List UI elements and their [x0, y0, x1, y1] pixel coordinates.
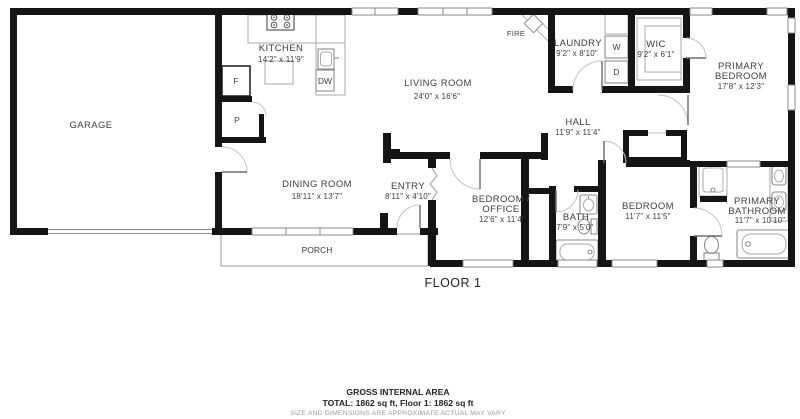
pantry-label: P [234, 115, 240, 125]
primary-bathroom-door [694, 208, 722, 236]
bath-label: BATH [563, 212, 589, 223]
fireplace-label: FIRE [507, 29, 525, 38]
garage-label: GARAGE [69, 120, 112, 131]
washer-label: W [612, 42, 620, 52]
primary-bedroom-door [658, 95, 688, 125]
entry-closet-bifold [430, 168, 437, 200]
plan-captions: FLOOR 1 GROSS INTERNAL AREA TOTAL: 1862 … [290, 276, 506, 417]
bedroom-label: BEDROOM [622, 201, 674, 212]
bedroom-dims: 11'7" x 11'5" [625, 212, 670, 221]
primary-bedroom-label-2: BEDROOM [715, 71, 767, 82]
garage-entry-door [222, 147, 247, 172]
porch-label: PORCH [302, 245, 333, 255]
primary-tub-icon [737, 230, 791, 258]
pantry-door [252, 102, 266, 116]
wic-door [686, 38, 706, 58]
wic-dims: 9'2" x 6'1" [637, 50, 674, 59]
room-labels: GARAGE KITCHEN 14'2" x 11'9" LIVING ROOM… [69, 38, 785, 255]
kitchen-dims: 14'2" x 11'9" [258, 55, 304, 64]
bath-dims: 7'9" x 5'0" [556, 223, 593, 232]
bedroom-door [604, 141, 626, 163]
laundry-dims: 9'2" x 8'10" [556, 49, 598, 58]
gross-area-total: TOTAL: 1862 sq ft, Floor 1: 1862 sq ft [322, 398, 473, 408]
dining-room-label: DINING ROOM [282, 179, 352, 190]
bedroom-office-label-2: OFFICE [482, 204, 519, 215]
exterior-walls [10, 8, 795, 267]
living-room-label: LIVING ROOM [404, 78, 472, 89]
front-door [397, 205, 420, 228]
hall-dims: 11'9" x 11'4" [555, 128, 600, 137]
bath-door [556, 190, 578, 212]
hall-label: HALL [565, 117, 590, 128]
primary-bathroom-dims: 11'7" x 10'10" [735, 216, 786, 225]
kitchen-label: KITCHEN [259, 43, 304, 54]
shower-icon [699, 164, 727, 196]
size-disclaimer: SIZE AND DIMENSIONS ARE APPROXIMATE ACTU… [290, 410, 506, 417]
kitchen-island [265, 61, 293, 84]
bedroom-office-door [450, 159, 480, 189]
laundry-label: LAUNDRY [554, 38, 602, 49]
entry-label: ENTRY [391, 181, 425, 192]
primary-bedroom-dims: 17'8" x 12'3" [718, 82, 764, 91]
gross-area-title: GROSS INTERNAL AREA [346, 387, 449, 397]
floorplan-canvas: GARAGE KITCHEN 14'2" x 11'9" LIVING ROOM… [0, 0, 800, 419]
garage-door [48, 230, 212, 234]
fireplace-icon [522, 14, 552, 45]
dining-room-dims: 18'11" x 13'7" [292, 192, 343, 201]
floor-label: FLOOR 1 [425, 276, 482, 290]
laundry-door [573, 61, 602, 90]
dryer-label: D [613, 67, 619, 77]
bedroom-office-dims: 12'6" x 11'4" [479, 215, 525, 224]
fridge-label: F [233, 76, 238, 86]
wic-label: WIC [646, 39, 666, 50]
entry-dims: 8'11" x 4'10" [385, 192, 431, 201]
living-room-dims: 24'0" x 16'6" [414, 92, 460, 101]
dishwasher-label: DW [318, 76, 332, 86]
floorplan-svg: GARAGE KITCHEN 14'2" x 11'9" LIVING ROOM… [0, 0, 800, 419]
kitchen-sink-icon [318, 49, 339, 69]
primary-toilet-icon [704, 237, 719, 262]
